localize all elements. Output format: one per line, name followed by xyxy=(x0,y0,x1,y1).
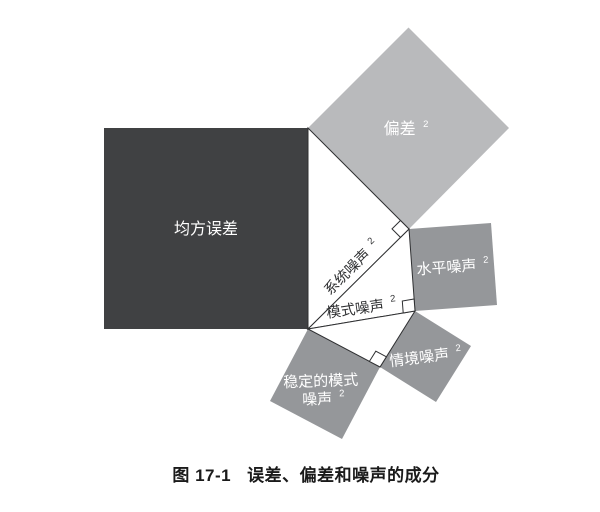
bias-label-text: 偏差 xyxy=(384,120,416,138)
bias-superscript: 2 xyxy=(423,119,428,130)
mse-label: 均方误差 xyxy=(174,220,238,238)
right-angle-icon xyxy=(402,299,415,313)
error-decomposition-diagram: 均方误差 偏差 2 系统噪声 2 模式噪声 2 水平噪声 2 情境噪声 2 稳定… xyxy=(0,0,600,512)
figure-title: 误差、偏差和噪声的成分 xyxy=(247,466,440,485)
stable-pattern-noise-superscript: 2 xyxy=(339,388,345,399)
level-noise-superscript: 2 xyxy=(483,255,489,266)
stable-pattern-noise-line1: 稳定的模式 xyxy=(283,372,359,392)
stable-pattern-noise-line2: 噪声 xyxy=(302,390,333,409)
figure-caption: 图 17-1误差、偏差和噪声的成分 xyxy=(0,461,600,486)
figure-number: 图 17-1 xyxy=(172,466,231,485)
figure-page: 均方误差 偏差 2 系统噪声 2 模式噪声 2 水平噪声 2 情境噪声 2 稳定… xyxy=(0,0,600,512)
